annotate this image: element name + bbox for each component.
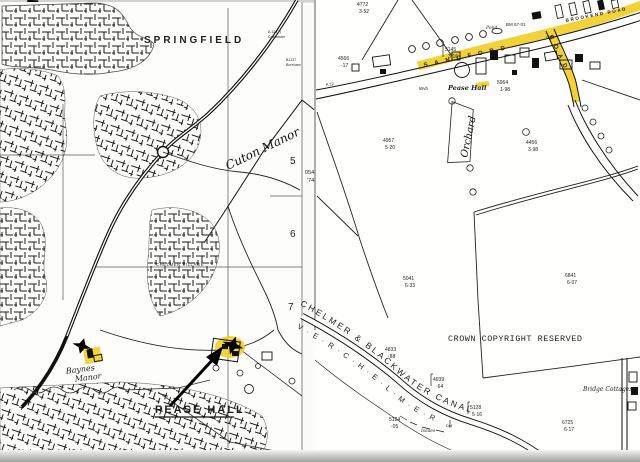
- pease-hall-italic-label: Pease Hall: [447, 84, 487, 92]
- parcel-number: 4939: [433, 377, 444, 383]
- guidepost-label: G.P: [546, 35, 554, 40]
- springfield-label: SPRINGFIELD: [144, 35, 244, 46]
- right-map-panel: Orchard SANDFORD ROAD BROOKEND ROAD A 12…: [296, 0, 640, 462]
- parcel-area: 1·98: [500, 87, 510, 93]
- wvh-label: Wvh: [419, 86, 428, 91]
- parcel-area: ·88: [388, 354, 395, 360]
- def-label: Def: [446, 423, 453, 428]
- parcel-area: 6·17: [564, 427, 574, 433]
- svg-text:B1137: B1137: [286, 58, 296, 62]
- parcel-number: 5128: [470, 405, 481, 411]
- parcel-area: ·05: [391, 424, 398, 430]
- edge-grid-numbers: 054 '74: [305, 170, 314, 184]
- svg-text:Boreham: Boreham: [286, 63, 301, 67]
- pease-hall-label: PEASE HALL: [155, 404, 245, 416]
- crown-copyright-label: CROWN COPYRIGHT RESERVED: [448, 334, 582, 344]
- parcel-number: 6725: [562, 420, 573, 426]
- svg-text:5: 5: [290, 156, 296, 167]
- svg-text:7: 7: [288, 302, 294, 313]
- svg-text:Colchester: Colchester: [268, 35, 286, 39]
- benchmark-label: BM 67·01: [506, 22, 526, 27]
- parcel-number: 5964: [497, 80, 508, 86]
- left-map-panel: SPRINGFIELD CHELMER VILLAGE PEASE HALL A…: [0, 0, 317, 456]
- svg-text:6: 6: [290, 229, 296, 240]
- pease-hall-label-group: PEASE HALL: [155, 404, 245, 417]
- parcel-area: ·17: [341, 63, 348, 69]
- parcel-area: 3·52: [359, 9, 369, 15]
- parcel-number: 5145: [445, 47, 456, 53]
- chelmer-village-label: CHELMER VILLAGE: [156, 262, 204, 267]
- parcel-number: 5124: [389, 417, 400, 423]
- issues-label: Issues: [420, 428, 436, 434]
- scan-bottom-shadow: [0, 450, 640, 462]
- svg-text:'74: '74: [307, 178, 314, 184]
- scanned-map-page: SPRINGFIELD CHELMER VILLAGE PEASE HALL A…: [0, 0, 640, 462]
- parcel-area: 5·20: [385, 145, 395, 151]
- bridge-cottages-label: Bridge Cottages: [582, 386, 632, 393]
- parcel-number: 6841: [565, 273, 576, 279]
- parcel-area: 6·33: [405, 283, 415, 289]
- parcel-area: 6·07: [567, 280, 577, 286]
- svg-text:A.12 (T): A.12 (T): [268, 30, 281, 34]
- parcel-area: ·64: [436, 384, 443, 390]
- parcel-area: 3·98: [528, 147, 538, 153]
- parcel-number: 5041: [403, 276, 414, 282]
- parcel-number: 4456: [526, 140, 537, 146]
- parcel-number: 4833: [385, 347, 396, 353]
- parcel-number: 4957: [383, 138, 394, 144]
- parcel-number: 4566: [338, 56, 349, 62]
- parcel-area: 3·16: [448, 54, 458, 60]
- svg-text:054: 054: [305, 170, 314, 176]
- map-canvas: SPRINGFIELD CHELMER VILLAGE PEASE HALL A…: [0, 0, 640, 462]
- parcel-number: 4772: [357, 2, 368, 8]
- pond-label: Pond: [485, 25, 497, 31]
- parcel-area: 5·16: [472, 412, 482, 418]
